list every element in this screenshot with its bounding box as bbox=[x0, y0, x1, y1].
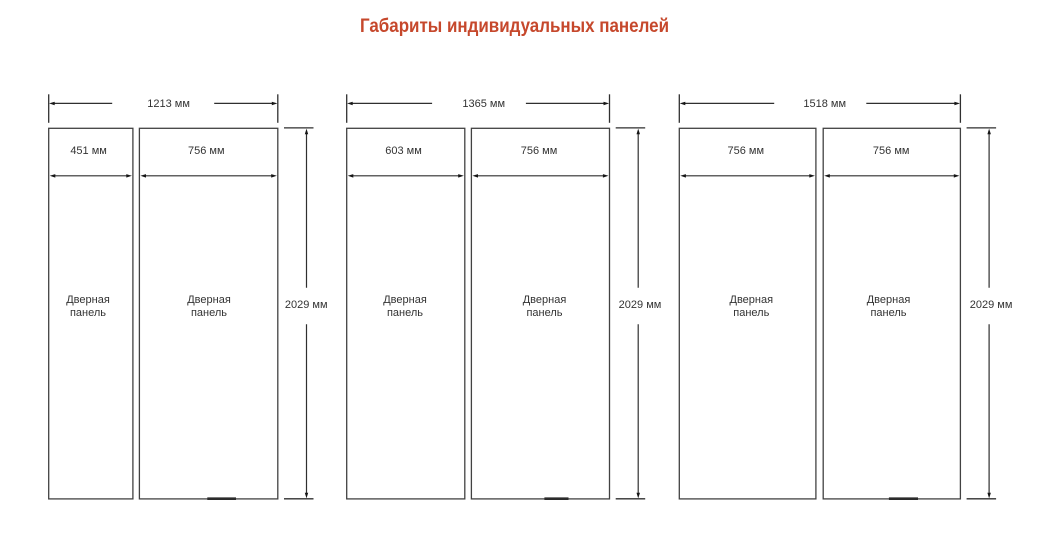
svg-text:2029 мм: 2029 мм bbox=[619, 299, 662, 311]
svg-text:1365 мм: 1365 мм bbox=[462, 98, 505, 110]
svg-text:451 мм: 451 мм bbox=[70, 145, 107, 157]
svg-text:Дверная: Дверная bbox=[383, 294, 427, 306]
svg-text:Дверная: Дверная bbox=[867, 294, 911, 306]
svg-text:756 мм: 756 мм bbox=[188, 145, 225, 157]
svg-text:603 мм: 603 мм bbox=[385, 145, 422, 157]
svg-text:панель: панель bbox=[526, 307, 562, 319]
svg-text:Дверная: Дверная bbox=[187, 294, 231, 306]
svg-text:1213 мм: 1213 мм bbox=[147, 98, 190, 110]
svg-text:панель: панель bbox=[70, 307, 106, 319]
svg-text:Габариты индивидуальных панеле: Габариты индивидуальных панелей bbox=[360, 16, 669, 37]
svg-text:панель: панель bbox=[870, 307, 906, 319]
svg-text:2029 мм: 2029 мм bbox=[970, 299, 1013, 311]
svg-text:1518 мм: 1518 мм bbox=[803, 98, 846, 110]
svg-text:Дверная: Дверная bbox=[66, 294, 110, 306]
svg-text:панель: панель bbox=[387, 307, 423, 319]
svg-text:Дверная: Дверная bbox=[523, 294, 567, 306]
svg-text:756 мм: 756 мм bbox=[728, 145, 765, 157]
svg-text:панель: панель bbox=[191, 307, 227, 319]
svg-text:Дверная: Дверная bbox=[730, 294, 774, 306]
svg-text:2029 мм: 2029 мм bbox=[285, 299, 328, 311]
svg-text:756 мм: 756 мм bbox=[521, 145, 558, 157]
svg-text:756 мм: 756 мм bbox=[873, 145, 910, 157]
svg-text:панель: панель bbox=[733, 307, 769, 319]
